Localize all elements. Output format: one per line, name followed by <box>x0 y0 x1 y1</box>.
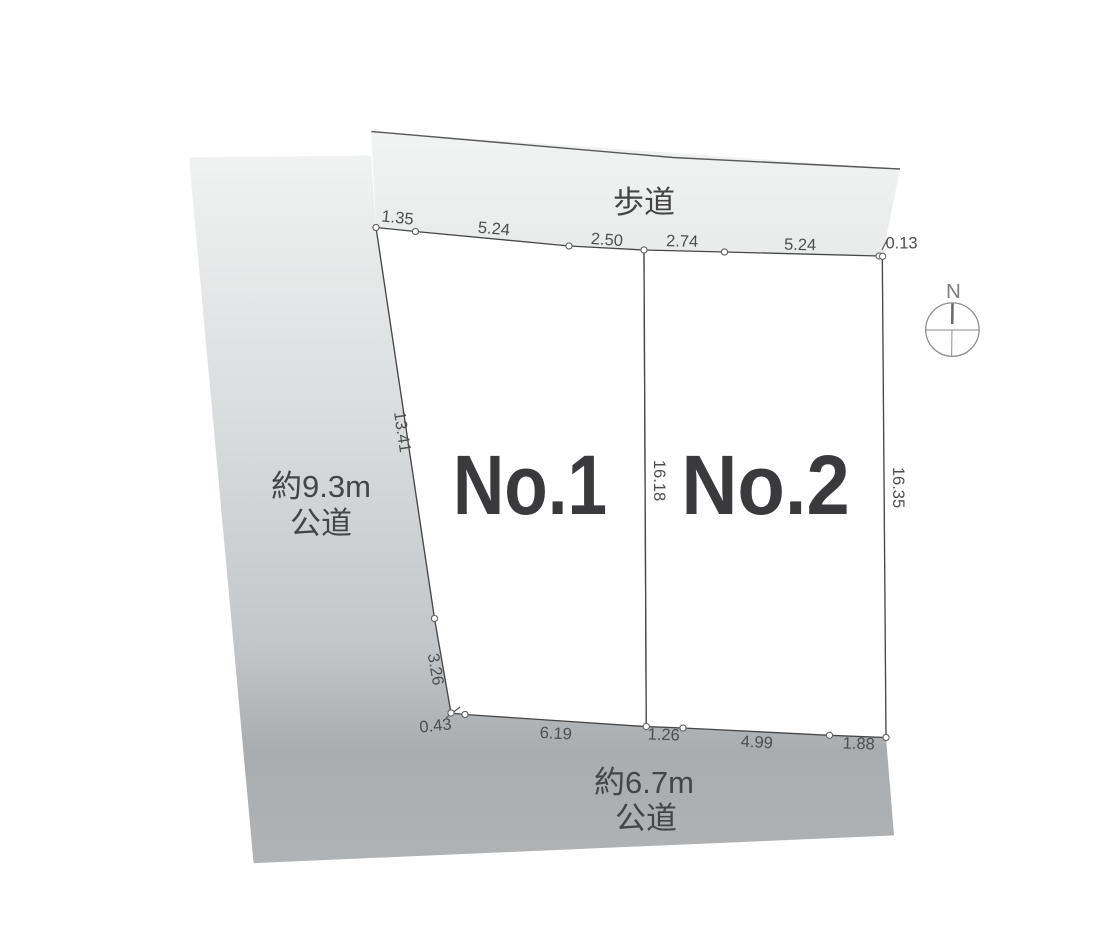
svg-text:1.88: 1.88 <box>842 734 875 753</box>
svg-text:0.43: 0.43 <box>419 715 453 736</box>
svg-text:0.13: 0.13 <box>885 235 917 253</box>
svg-text:N: N <box>946 280 961 303</box>
svg-text:約9.3m: 約9.3m <box>271 469 371 504</box>
svg-text:公道: 公道 <box>290 506 352 541</box>
svg-text:1.26: 1.26 <box>647 725 680 744</box>
svg-text:No.1: No.1 <box>453 440 607 533</box>
svg-text:4.99: 4.99 <box>740 733 773 753</box>
svg-text:歩道: 歩道 <box>613 185 675 220</box>
svg-text:No.2: No.2 <box>681 439 849 532</box>
svg-text:約6.7m: 約6.7m <box>594 765 694 800</box>
svg-text:2.74: 2.74 <box>666 232 699 251</box>
svg-text:6.19: 6.19 <box>539 724 572 744</box>
svg-text:5.24: 5.24 <box>477 219 511 240</box>
svg-text:16.18: 16.18 <box>650 460 668 501</box>
svg-text:16.35: 16.35 <box>889 467 907 508</box>
svg-text:公道: 公道 <box>615 801 677 836</box>
svg-text:5.24: 5.24 <box>784 236 817 255</box>
svg-text:1.35: 1.35 <box>381 207 415 228</box>
svg-text:2.50: 2.50 <box>590 230 623 250</box>
